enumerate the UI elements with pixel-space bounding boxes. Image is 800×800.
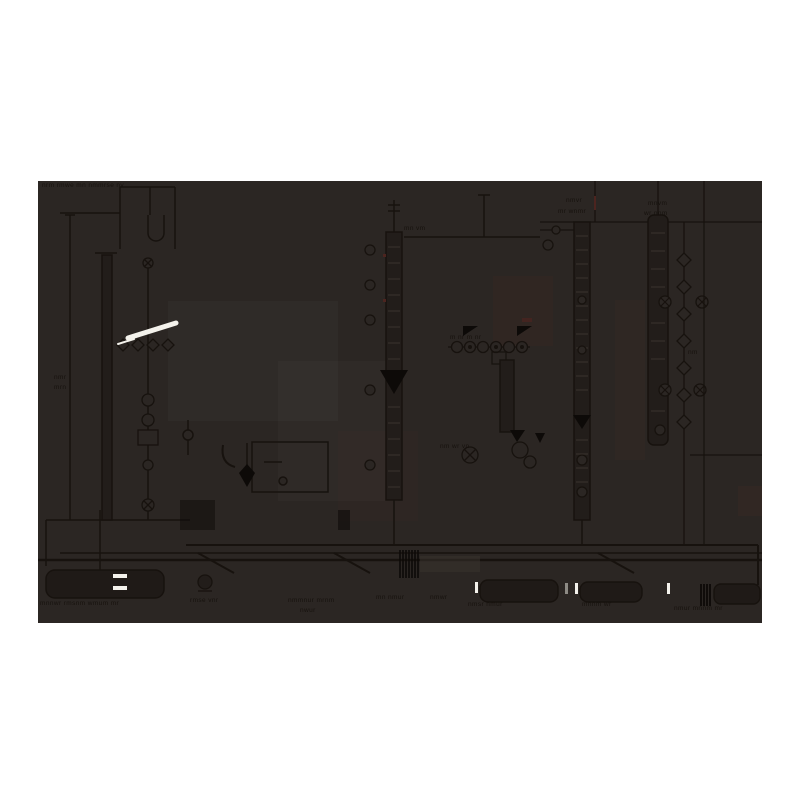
gray-gauge-mark — [565, 583, 568, 594]
drum-vessel — [580, 582, 642, 602]
label-colF-1: mnvm — [648, 200, 667, 207]
hatch-marks — [400, 550, 480, 578]
label-mid-1: nmmnur mrnm — [288, 597, 335, 604]
red-mark — [383, 254, 386, 257]
diamond-valve-icon — [147, 339, 159, 351]
exchanger-icon — [452, 342, 463, 353]
label-mid-4: nmwr — [430, 594, 448, 601]
funnel-icon — [535, 433, 545, 443]
label-drum1: mnnwr rmsnm wmum mr — [40, 600, 119, 607]
diamond-valve-icon — [677, 388, 691, 402]
instrument-icon — [365, 460, 375, 470]
label-right-small: nm — [688, 349, 698, 356]
exchanger-icon — [478, 342, 489, 353]
small-box — [138, 430, 158, 445]
screenshot-stage: nrm rmwe mn nmmrse nv mn vm nmvr mr wnmr… — [0, 0, 800, 800]
white-gauge-mark — [475, 582, 478, 593]
process-flow-diagram — [38, 181, 762, 623]
instrument-icon — [578, 296, 586, 304]
label-vessel3: mnnm wr — [582, 601, 612, 608]
white-gauge-mark — [575, 583, 578, 594]
stripper-column — [500, 360, 514, 432]
label-exchanger: m nr m nr — [450, 334, 481, 341]
label-mid-2: nwur — [300, 607, 316, 614]
left-valve-stack — [117, 258, 174, 511]
diamond-valve-icon — [677, 334, 691, 348]
title-text: nrm rmwe mn nmmrse nv — [42, 182, 124, 189]
label-vessel2: nmsr nmur — [468, 601, 503, 608]
label-mid-3: mn nmur — [376, 594, 404, 601]
instrument-icon — [577, 455, 587, 465]
valve-icon — [183, 430, 193, 440]
red-mark — [594, 196, 596, 210]
valve-icon — [543, 240, 553, 250]
pump-icon — [198, 575, 212, 589]
red-mark — [522, 318, 532, 322]
label-top-mid: mn vm — [404, 225, 426, 232]
red-mark — [383, 299, 386, 302]
label-vessel4: nmur mnnm mr — [674, 605, 723, 612]
striped-box — [701, 584, 710, 606]
instrument-icon — [143, 460, 153, 470]
label-cluster: nm wr vn — [440, 443, 470, 450]
label-left-1: nmr — [54, 374, 66, 381]
exchanger-icon — [504, 342, 515, 353]
instrument-icon — [365, 280, 375, 290]
white-gauge-mark — [113, 574, 127, 578]
pump-icon — [524, 456, 536, 468]
instrument-icon — [578, 346, 586, 354]
valve-icon — [552, 226, 560, 234]
texture-patches — [168, 276, 762, 521]
diamond-valve-icon — [677, 415, 691, 429]
label-colE-2: mr wnmr — [558, 208, 586, 215]
pump-icon — [512, 442, 528, 458]
label-colF-2: wr nnm — [644, 210, 668, 217]
left-column — [95, 253, 117, 520]
instrument-icon — [142, 414, 154, 426]
dark-patch — [180, 500, 215, 530]
instrument-icon — [577, 487, 587, 497]
drum-vessel — [46, 570, 164, 598]
diamond-valve-icon — [677, 253, 691, 267]
instrument-icon — [365, 385, 375, 395]
instrument-icon — [365, 245, 375, 255]
white-gauge-mark — [113, 586, 127, 590]
diamond-valve-icon — [677, 307, 691, 321]
drum-vessel — [480, 580, 558, 602]
valve-icon — [655, 425, 665, 435]
drum-vessel — [714, 584, 760, 604]
funnel-icon — [510, 430, 525, 442]
diamond-valve-icon — [677, 280, 691, 294]
instrument-icon — [142, 394, 154, 406]
diamond-valve-icon — [132, 339, 144, 351]
dark-patch — [338, 510, 350, 530]
instrument-icon — [365, 315, 375, 325]
diamond-valve-icon — [677, 361, 691, 375]
diagram-panel: nrm rmwe mn nmmrse nv mn vm nmvr mr wnmr… — [38, 181, 762, 623]
label-left-2: mrn — [54, 384, 66, 391]
label-pump1: rmse vnr — [190, 597, 218, 604]
white-gauge-mark — [667, 583, 670, 594]
label-colE-1: nmvr — [566, 197, 582, 204]
